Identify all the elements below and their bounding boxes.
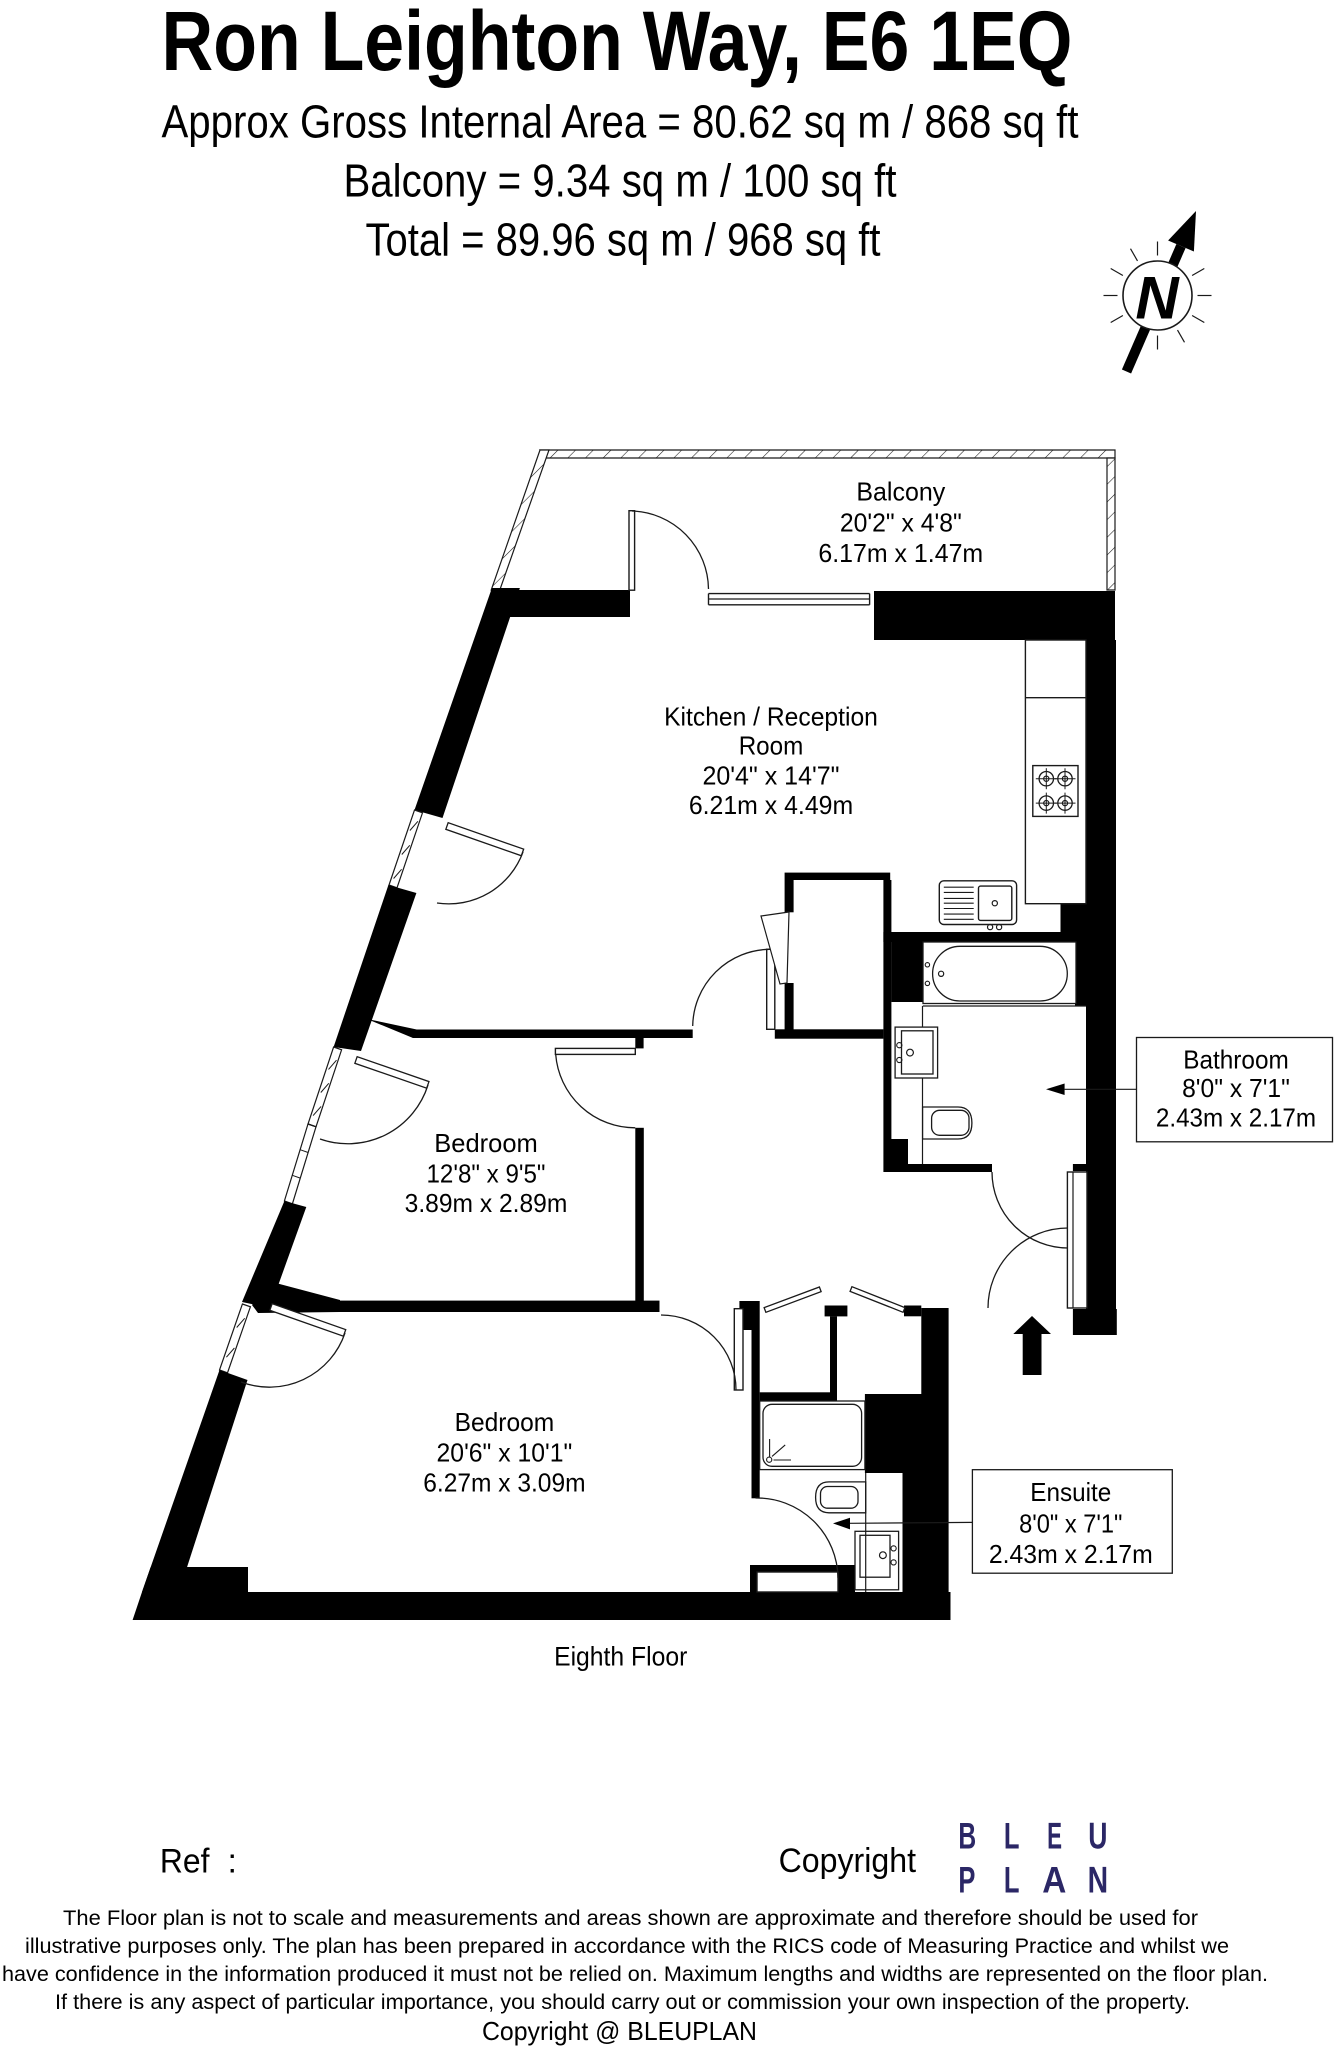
svg-text:If there is any aspect of part: If there is any aspect of particular imp… [55,1991,1190,2014]
svg-text:Bedroom: Bedroom [455,1407,555,1437]
svg-text:N: N [1135,265,1180,332]
svg-text:B: B [958,1815,976,1856]
svg-text:Eighth Floor: Eighth Floor [554,1642,687,1672]
svg-text:3.89m x 2.89m: 3.89m x 2.89m [405,1188,568,1218]
svg-text:Balcony: Balcony [856,477,945,507]
svg-text:U: U [1088,1815,1107,1856]
svg-text:Bathroom: Bathroom [1183,1044,1289,1074]
svg-text:20'6" x 10'1": 20'6" x 10'1" [437,1438,573,1468]
svg-text:A: A [1042,1859,1066,1900]
svg-text:Balcony = 9.34 sq m / 100 sq f: Balcony = 9.34 sq m / 100 sq ft [344,154,897,206]
svg-text:The Floor plan is not to scale: The Floor plan is not to scale and measu… [63,1907,1198,1930]
svg-text:Copyright: Copyright [779,1842,917,1880]
svg-text:illustrative purposes only. Th: illustrative purposes only. The plan has… [25,1935,1229,1958]
svg-text:8'0" x 7'1": 8'0" x 7'1" [1182,1073,1290,1103]
svg-text:6.17m x 1.47m: 6.17m x 1.47m [818,538,983,568]
svg-text:Ron Leighton Way, E6 1EQ: Ron Leighton Way, E6 1EQ [162,0,1073,88]
svg-text:Copyright @ BLEUPLAN: Copyright @ BLEUPLAN [482,2016,757,2046]
svg-text:L: L [1004,1815,1020,1856]
svg-text:2.43m x 2.17m: 2.43m x 2.17m [1156,1103,1316,1133]
svg-text:Total = 89.96 sq m / 968 sq ft: Total = 89.96 sq m / 968 sq ft [366,214,881,266]
svg-text:Ensuite: Ensuite [1030,1477,1111,1507]
svg-text:L: L [1004,1859,1020,1900]
svg-text:Approx Gross Internal Area = 8: Approx Gross Internal Area = 80.62 sq m … [162,96,1079,148]
svg-text:Room: Room [739,731,804,761]
svg-text:N: N [1088,1859,1109,1900]
svg-text:8'0" x 7'1": 8'0" x 7'1" [1019,1508,1122,1538]
svg-text:12'8" x 9'5": 12'8" x 9'5" [427,1158,546,1188]
svg-text::: : [228,1843,237,1881]
svg-text:have confidence in the informa: have confidence in the information produ… [2,1963,1268,1986]
svg-text:P: P [958,1859,975,1900]
svg-text:20'2" x 4'8": 20'2" x 4'8" [840,507,962,537]
svg-text:20'4" x 14'7": 20'4" x 14'7" [702,760,839,790]
svg-text:6.21m x 4.49m: 6.21m x 4.49m [689,790,853,820]
svg-text:Kitchen / Reception: Kitchen / Reception [664,701,878,731]
svg-text:E: E [1047,1815,1062,1856]
svg-text:2.43m x 2.17m: 2.43m x 2.17m [989,1539,1153,1569]
svg-text:Ref: Ref [160,1843,210,1881]
svg-text:6.27m x 3.09m: 6.27m x 3.09m [423,1468,585,1498]
svg-text:Bedroom: Bedroom [434,1128,538,1158]
